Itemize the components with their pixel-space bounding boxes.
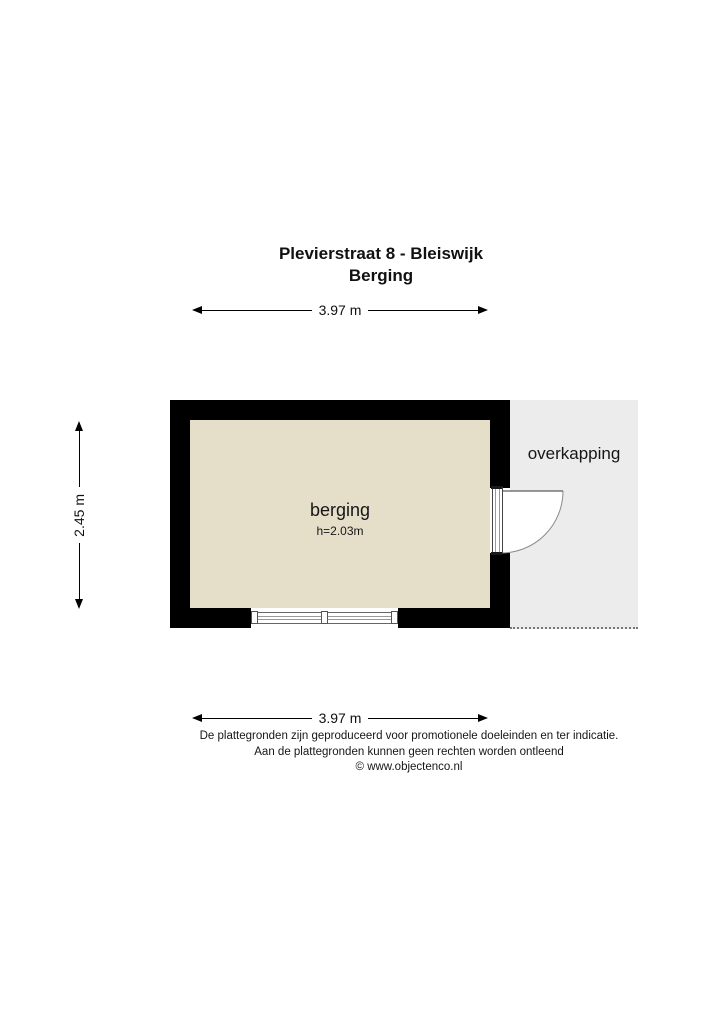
arrow-left-icon bbox=[192, 306, 202, 314]
dimension-top-label: 3.97 m bbox=[312, 302, 369, 318]
disclaimer-line: De plattegronden zijn geproduceerd voor … bbox=[109, 729, 709, 745]
dimension-bottom-label: 3.97 m bbox=[312, 710, 369, 726]
disclaimer: De plattegronden zijn geproduceerd voor … bbox=[109, 729, 709, 776]
window-mullion bbox=[391, 611, 398, 624]
room-ceiling-height: h=2.03m bbox=[190, 524, 490, 538]
door-leaf bbox=[492, 487, 503, 554]
berging-room: berging h=2.03m bbox=[190, 420, 490, 608]
window bbox=[251, 608, 398, 628]
door-leaf-line bbox=[495, 487, 496, 554]
door-jamb bbox=[491, 486, 502, 489]
window-mullion bbox=[321, 611, 328, 624]
room-label: berging bbox=[190, 500, 490, 521]
arrow-up-icon bbox=[75, 421, 83, 431]
dimension-side-label: 2.45 m bbox=[71, 487, 87, 544]
door-leaf-line bbox=[499, 487, 500, 554]
page-title: Plevierstraat 8 - Bleiswijk Berging bbox=[181, 243, 581, 287]
disclaimer-line: Aan de plattegronden kunnen geen rechten… bbox=[109, 745, 709, 761]
copyright-line: © www.objectenco.nl bbox=[109, 760, 709, 776]
dimension-line bbox=[202, 718, 312, 719]
overkapping-label: overkapping bbox=[528, 444, 621, 464]
arrow-down-icon bbox=[75, 599, 83, 609]
dimension-line bbox=[368, 718, 478, 719]
dimension-side: 2.45 m bbox=[72, 421, 86, 609]
dimension-line bbox=[79, 543, 80, 599]
dimension-bottom: 3.97 m bbox=[192, 711, 488, 725]
dimension-top: 3.97 m bbox=[192, 303, 488, 317]
dimension-line bbox=[202, 310, 312, 311]
dimension-line bbox=[79, 431, 80, 487]
arrow-right-icon bbox=[478, 714, 488, 722]
floorplan-page: Plevierstraat 8 - Bleiswijk Berging 3.97… bbox=[0, 0, 724, 1024]
arrow-left-icon bbox=[192, 714, 202, 722]
floor-title: Berging bbox=[181, 265, 581, 287]
window-mullion bbox=[251, 611, 258, 624]
arrow-right-icon bbox=[478, 306, 488, 314]
door-jamb bbox=[491, 552, 502, 555]
address-title: Plevierstraat 8 - Bleiswijk bbox=[181, 243, 581, 265]
door-swing-arc bbox=[496, 484, 576, 560]
dimension-line bbox=[368, 310, 478, 311]
